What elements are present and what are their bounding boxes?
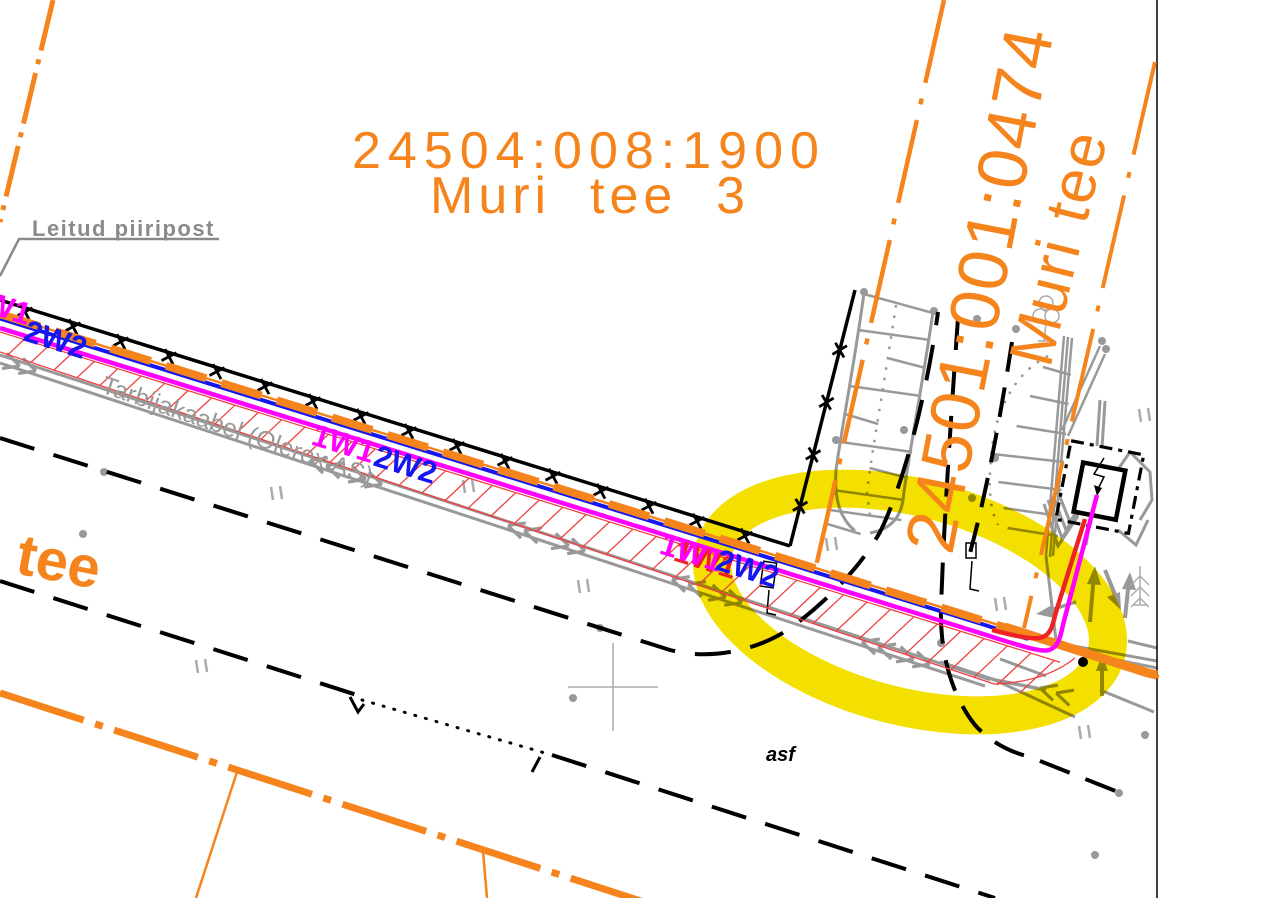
svg-text:asf: asf bbox=[766, 744, 797, 766]
svg-text:Leitud piiripost: Leitud piiripost bbox=[32, 216, 215, 241]
svg-text:Muri tee 3: Muri tee 3 bbox=[430, 167, 750, 225]
